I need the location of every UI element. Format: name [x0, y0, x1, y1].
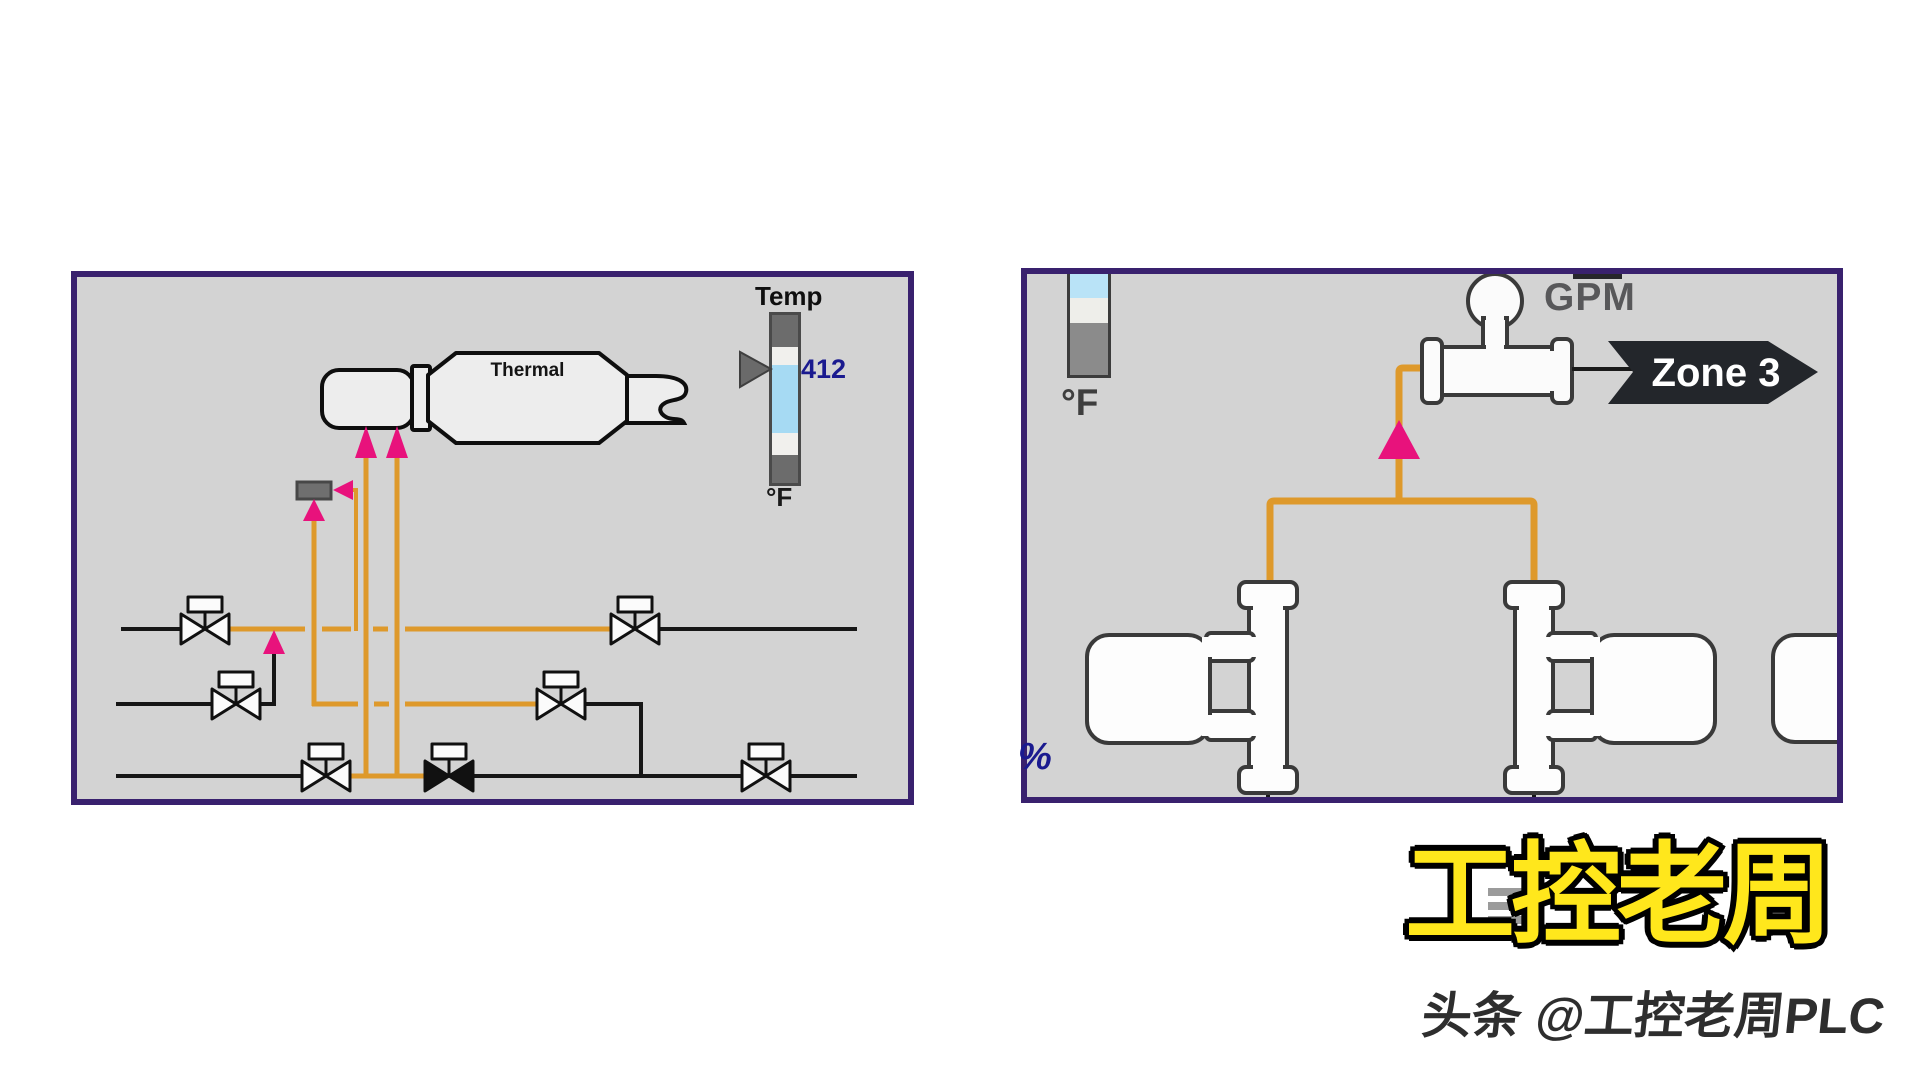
orange-pipes: [1270, 368, 1534, 582]
temp-bar-segment: [1070, 323, 1108, 375]
valve-body: [425, 761, 449, 791]
pump-actuator: [1592, 635, 1715, 743]
flow-direction-arrows: [263, 426, 408, 654]
valve-body: [302, 761, 326, 791]
valve-body: [449, 761, 473, 791]
pump-valve-right[interactable]: [1505, 582, 1715, 793]
sensor-block: [297, 482, 331, 499]
valve-column: [1515, 604, 1553, 771]
valve-row1-left[interactable]: [181, 597, 229, 644]
temp-bar-indicator: [1069, 274, 1110, 377]
process-panel-left: [71, 271, 914, 805]
flow-arrow-up-icon: [263, 630, 285, 654]
valve-body: [635, 614, 659, 644]
temp-level-indicator: [740, 314, 800, 485]
watermark-subtitle: 头条 @工控老周PLC: [1419, 991, 1887, 1041]
pump-actuator: [1087, 635, 1210, 743]
temp-bar-unit-label: °F: [1061, 384, 1098, 421]
valve-actuator: [432, 744, 466, 759]
valve-row3-left[interactable]: [302, 744, 350, 791]
process-diagram-left: [77, 277, 908, 799]
pump-valve-left[interactable]: [1087, 582, 1297, 793]
pump-actuator-clipped: [1773, 635, 1837, 742]
valve-body: [212, 689, 236, 719]
flow-arrow-up-icon: [303, 499, 325, 521]
valve-row3-right[interactable]: [742, 744, 790, 791]
valve-actuator: [309, 744, 343, 759]
temp-unit-label: °F: [766, 484, 792, 510]
valve-actuator: [188, 597, 222, 612]
flow-arrow-up-icon: [386, 426, 408, 458]
valve-actuator: [618, 597, 652, 612]
flow-meter-flange: [1422, 339, 1442, 403]
temp-bar-segment: [772, 315, 798, 347]
drain-stubs: [1268, 791, 1534, 797]
flow-arrow-up-icon: [1378, 420, 1420, 459]
valve-body: [205, 614, 229, 644]
valve-actuator: [749, 744, 783, 759]
temp-indicator-label: Temp: [755, 283, 822, 309]
valve-row1-right[interactable]: [611, 597, 659, 644]
zone3-banner-label: Zone 3: [1636, 342, 1796, 404]
valve-actuator: [219, 672, 253, 687]
vessel-outlet-curl: [627, 376, 686, 423]
valve-body: [611, 614, 635, 644]
temp-pointer-icon: [740, 352, 771, 387]
valve-actuator: [544, 672, 578, 687]
valve-body: [181, 614, 205, 644]
flow-arrow-up-icon: [355, 426, 377, 458]
temp-bar-segment: [1070, 298, 1108, 323]
valve-row2-right[interactable]: [537, 672, 585, 719]
temp-bar-segment: [772, 455, 798, 483]
temp-value: 412: [801, 356, 846, 383]
valve-row3-center-closed[interactable]: [425, 744, 473, 791]
percent-label: %: [1018, 738, 1052, 776]
valve-body: [326, 761, 350, 791]
flow-arrow-left-icon: [333, 480, 353, 500]
valve-body: [236, 689, 260, 719]
temp-bar-level: [1070, 274, 1108, 298]
valve-body: [561, 689, 585, 719]
vessel-label: Thermal: [455, 361, 600, 380]
flow-meter-label: GPM: [1544, 278, 1636, 317]
valve-body: [742, 761, 766, 791]
watermark-title: 工控老周: [1405, 841, 1829, 951]
valve-body: [537, 689, 561, 719]
temp-bar-level: [772, 365, 798, 433]
valve-column: [1249, 604, 1287, 771]
valve-body: [766, 761, 790, 791]
flow-meter-tube: [1440, 347, 1554, 395]
valve-row2-left[interactable]: [212, 672, 260, 719]
vessel-left-cap: [322, 370, 414, 428]
orange-pipes: [229, 456, 612, 776]
